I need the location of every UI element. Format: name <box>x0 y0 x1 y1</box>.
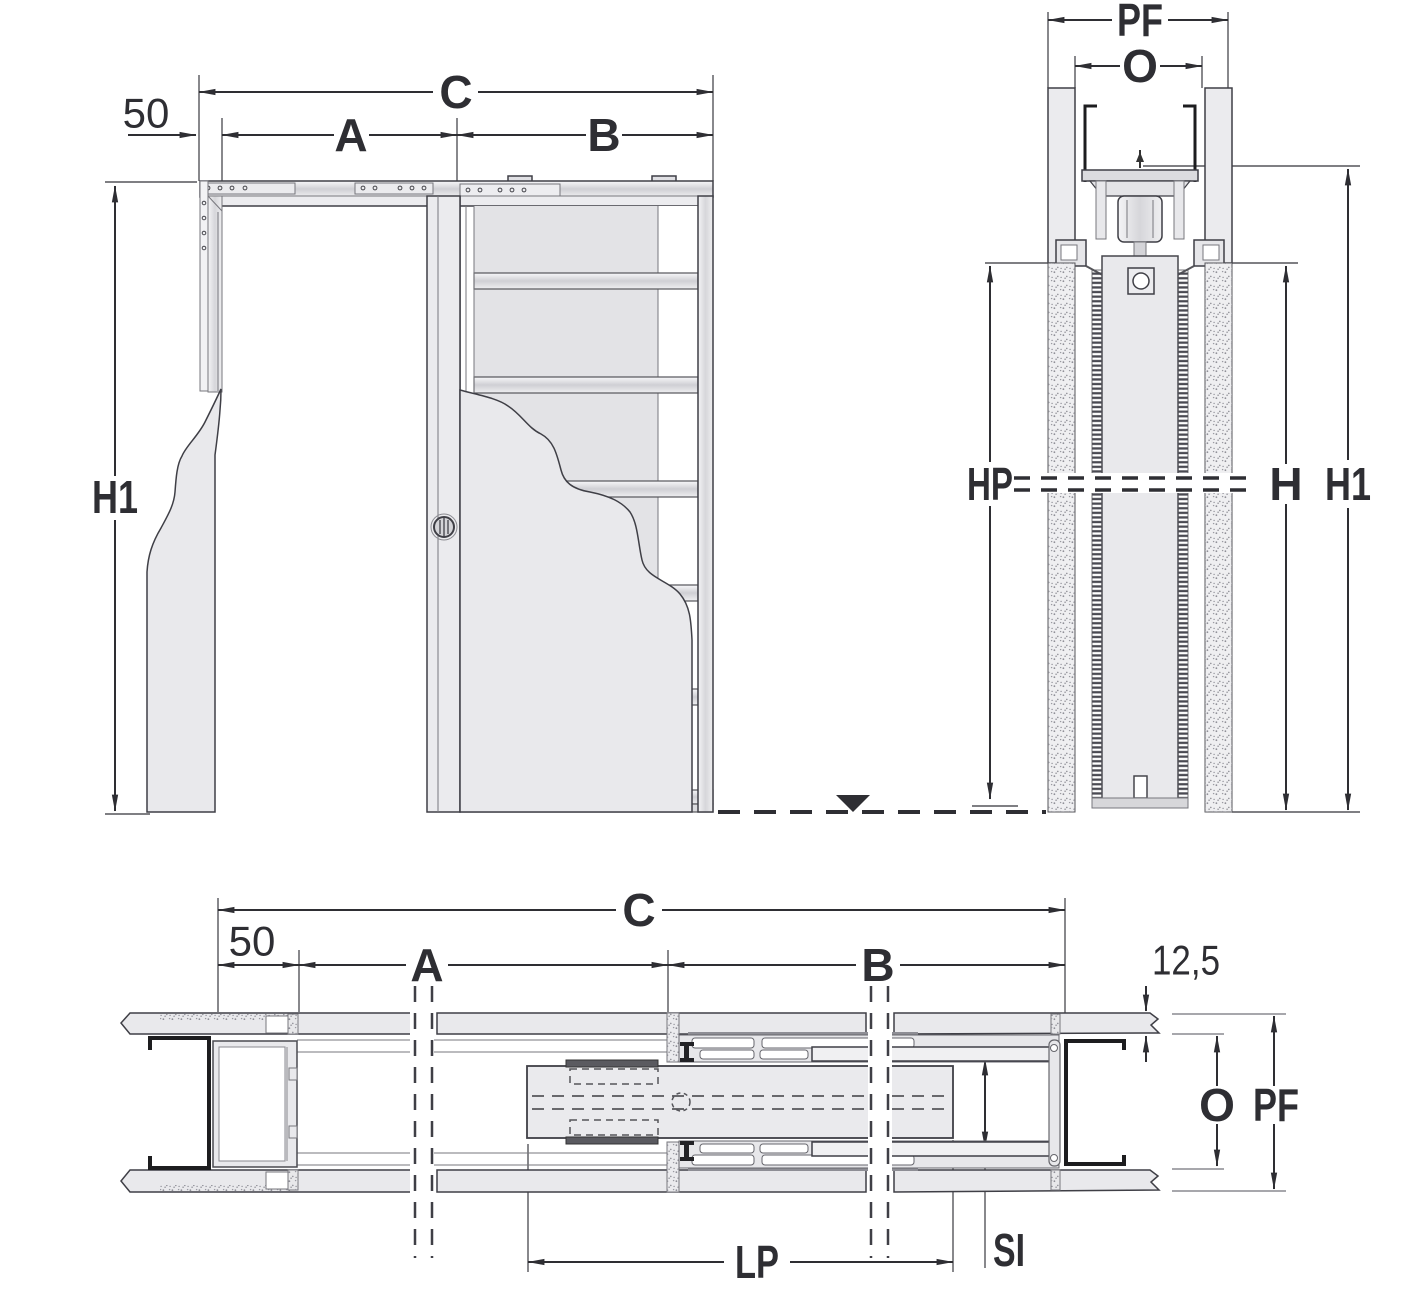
dim-label-plan-pf: PF <box>1253 1079 1299 1131</box>
plasterboard-top <box>437 1013 866 1034</box>
dim-label-plan-si: SI <box>993 1224 1025 1276</box>
vertical-section-view: PF O HP H H1 <box>967 0 1371 812</box>
dim-label-section-h: H <box>1269 458 1302 510</box>
plan-entrance-jamb <box>1049 1014 1124 1190</box>
plasterboard-bottom <box>894 1170 1159 1192</box>
dim-label-plan-o: O <box>1199 1079 1235 1131</box>
floor-guide-slot <box>1134 776 1147 798</box>
front-torn-wall-left <box>147 389 221 812</box>
dim-label-section-h1: H1 <box>1325 458 1371 510</box>
dim-label-plan-board: 12,5 <box>1152 937 1220 984</box>
section-track-assembly <box>1056 106 1224 278</box>
horizontal-section-view: C 50 A B 12,5 O PF LP SI <box>121 884 1299 1288</box>
left-jamb <box>200 181 222 392</box>
crossbar <box>474 377 698 393</box>
top-track <box>222 196 713 206</box>
dim-label-plan-a: A <box>410 939 443 991</box>
door-bottom-plate <box>1092 798 1188 808</box>
dim-label-plan-b: B <box>861 939 894 991</box>
door-panel-section <box>1102 256 1178 800</box>
hanger-stem <box>1134 242 1146 256</box>
floor-level-marker <box>836 795 870 812</box>
plasterboard-top <box>894 1013 1159 1034</box>
diagram-page: C 50 A B H1 <box>0 0 1428 1292</box>
dim-label-section-o: O <box>1122 40 1158 92</box>
dim-label-front-h1: H1 <box>92 471 138 523</box>
header-screw-plate <box>201 183 295 194</box>
crossbar <box>474 273 698 289</box>
dim-label-section-hp: HP <box>967 458 1013 510</box>
track-rail <box>1082 170 1198 181</box>
header-screw-plate <box>355 183 433 194</box>
dim-label-plan-c: C <box>622 884 655 936</box>
door-bumper <box>566 1137 658 1144</box>
cage-right-post <box>698 196 713 812</box>
technical-drawing: C 50 A B H1 <box>0 0 1428 1292</box>
adjustment-screw <box>1136 152 1144 162</box>
door-bumper <box>566 1060 658 1067</box>
front-door-panel <box>427 196 460 812</box>
dim-label-plan-lp: LP <box>735 1236 779 1288</box>
closing-jamb-channel <box>150 1038 209 1168</box>
dim-label-front-offset: 50 <box>123 90 170 137</box>
plasterboard-bottom <box>437 1170 866 1192</box>
brush-seal <box>1092 270 1102 798</box>
plan-closing-jamb <box>150 1014 298 1190</box>
floor-level-line <box>718 795 1046 812</box>
front-elevation-view: C 50 A B H1 <box>92 66 1046 814</box>
roller-carriage <box>1118 196 1162 242</box>
brush-seal <box>1178 270 1188 798</box>
dim-label-front-a: A <box>334 109 367 161</box>
entrance-jamb-channel <box>1066 1041 1124 1164</box>
dim-label-front-b: B <box>587 109 620 161</box>
dim-label-plan-offset: 50 <box>229 918 276 965</box>
dim-label-front-c: C <box>439 66 472 118</box>
section-pocket <box>1014 256 1256 812</box>
